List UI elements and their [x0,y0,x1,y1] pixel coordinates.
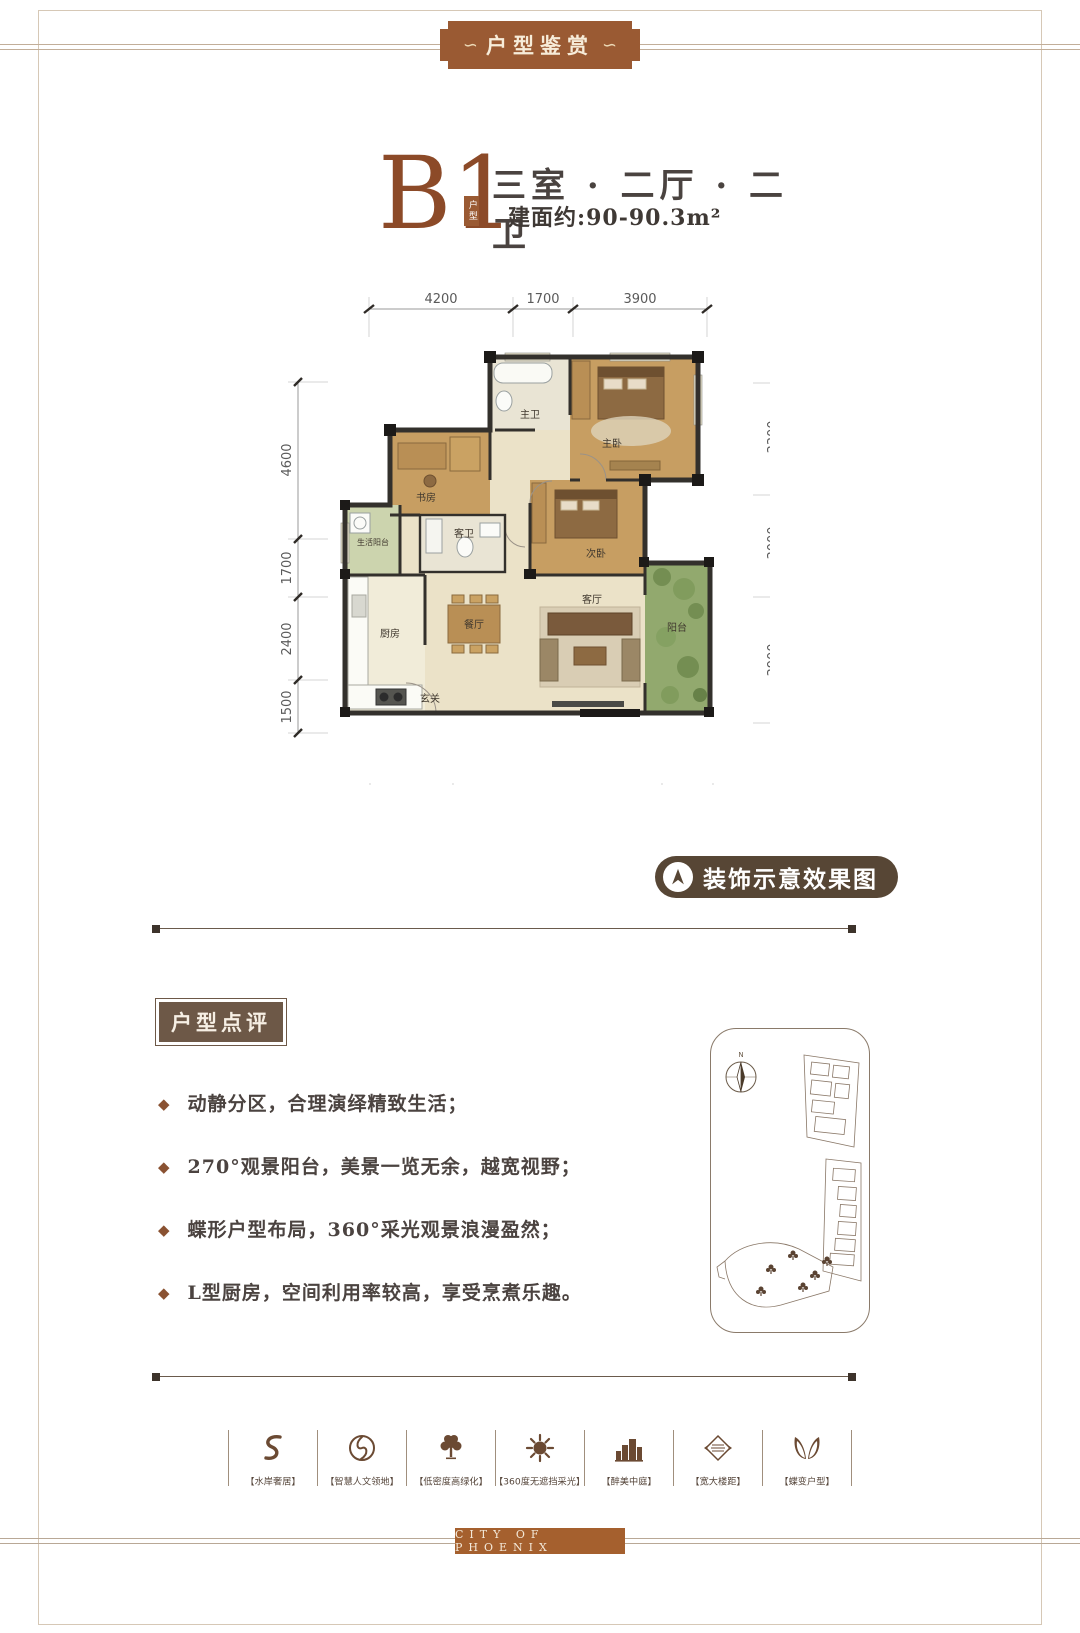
site-buildings [717,1055,861,1307]
section-banner: ∽ 户型鉴赏 ∽ [440,21,640,69]
dim-top-2: 1700 [526,292,559,307]
svg-text:N: N [738,1051,743,1059]
brand-box: CITY OF PHOENIX [455,1528,625,1554]
divider-end-square [152,925,160,933]
feature-label: 【水岸奢居】 [245,1474,300,1488]
dim-right-1: 3300 [766,420,770,453]
brochure-page: ∽ 户型鉴赏 ∽ B1 户型 三室 · 二厅 · 二卫 建面约:90-90.3m… [0,0,1080,1633]
dim-right-3: 3900 [766,643,770,676]
dim-left-3: 2400 [280,622,295,655]
divider-end-square [152,1373,160,1381]
culture-swirl-icon [346,1428,378,1464]
decoration-note-badge: 装饰示意效果图 [655,856,898,898]
dim-top-3: 3900 [623,292,656,307]
banner-ornament-left: ∽ [463,35,478,56]
room-label-kitchen: 厨房 [380,627,400,640]
banner-ornament-right: ∽ [602,35,617,56]
feature-item-waterfront: 【水岸奢居】 [229,1428,317,1488]
site-trees [756,1251,832,1297]
site-compass-icon: N [726,1051,756,1092]
divider-line [160,928,848,929]
feature-separator [851,1430,852,1486]
review-point: ◆ 270°观景阳台，美景一览无余，越宽视野； [158,1155,678,1179]
site-map: N [710,1028,870,1333]
dim-left-2: 1700 [280,551,295,584]
room-label-master-bath: 主卫 [520,409,540,421]
review-point-text: 270°观景阳台，美景一览无余，越宽视野； [188,1155,581,1179]
feature-label: 【蝶变户型】 [779,1474,834,1488]
divider-bottom [152,1372,856,1381]
review-point: ◆ 动静分区，合理演绎精致生活； [158,1092,678,1116]
room-label-life-balcony: 生活阳台 [357,537,389,547]
feature-item-daylight: 【360度无遮挡采光】 [496,1428,584,1488]
feature-label: 【智慧人文领地】 [325,1474,399,1488]
review-title: 户型点评 [159,1002,283,1042]
courtyard-icon [613,1428,645,1464]
room-label-dining: 餐厅 [464,618,484,631]
unit-area: 建面约:90-90.3m² [508,200,721,232]
feature-item-butterfly: 【蝶变户型】 [763,1428,851,1488]
floorplan: 4200 1700 3900 4600 1700 2400 1500 3300 … [280,275,770,785]
feature-item-culture: 【智慧人文领地】 [318,1428,406,1488]
diamond-bullet-icon: ◆ [158,1092,170,1116]
brand-text: CITY OF PHOENIX [455,1528,625,1554]
room-label-master-bed: 主卧 [602,437,622,450]
review-point: ◆ 蝶形户型布局，360°采光观景浪漫盈然； [158,1218,678,1242]
diamond-bullet-icon: ◆ [158,1218,170,1242]
feature-label: 【低密度高绿化】 [414,1474,488,1488]
banner-title: 户型鉴赏 [486,30,594,60]
room-label-second-bed: 次卧 [586,547,606,560]
review-point: ◆ L型厨房，空间利用率较高，享受烹煮乐趣。 [158,1281,678,1305]
review-point-text: L型厨房，空间利用率较高，享受烹煮乐趣。 [188,1281,582,1305]
feature-item-courtyard: 【醉美中庭】 [585,1428,673,1488]
dim-right-2: 3000 [766,526,770,559]
building-spacing-icon [702,1428,734,1464]
dim-left-4: 1500 [280,690,295,723]
room-label-balcony: 阳台 [667,621,687,634]
unit-code-tag: 户型 [464,196,479,226]
divider-line [160,1376,848,1377]
room-label-study: 书房 [416,491,436,504]
divider-top [152,924,856,933]
diamond-bullet-icon: ◆ [158,1155,170,1179]
room-label-foyer: 玄关 [420,692,440,705]
diamond-bullet-icon: ◆ [158,1281,170,1305]
feature-label: 【宽大楼距】 [690,1474,745,1488]
review-point-text: 动静分区，合理演绎精致生活； [188,1092,468,1116]
review-point-text: 蝶形户型布局，360°采光观景浪漫盈然； [188,1218,561,1242]
feature-item-spacing: 【宽大楼距】 [674,1428,762,1488]
room-label-living: 客厅 [582,593,602,606]
feature-label: 【醉美中庭】 [601,1474,656,1488]
north-arrow-icon [663,862,693,892]
divider-end-square [848,1373,856,1381]
room-label-guest-bath: 客卫 [454,527,474,540]
feature-label: 【360度无遮挡采光】 [494,1474,585,1488]
dim-top-1: 4200 [424,292,457,307]
feature-item-greenery: 【低密度高绿化】 [407,1428,495,1488]
dim-left-1: 4600 [280,443,295,476]
divider-end-square [848,925,856,933]
tree-icon [435,1428,467,1464]
feature-list: 【水岸奢居】 【智慧人文领地】 【低密度高绿化】 【360度无遮挡采光】 [0,1428,1080,1488]
decoration-note-text: 装饰示意效果图 [703,860,878,894]
butterfly-icon [791,1428,823,1464]
review-title-box: 户型点评 [155,998,287,1046]
sun-icon [524,1428,556,1464]
water-swirl-icon [257,1428,289,1464]
